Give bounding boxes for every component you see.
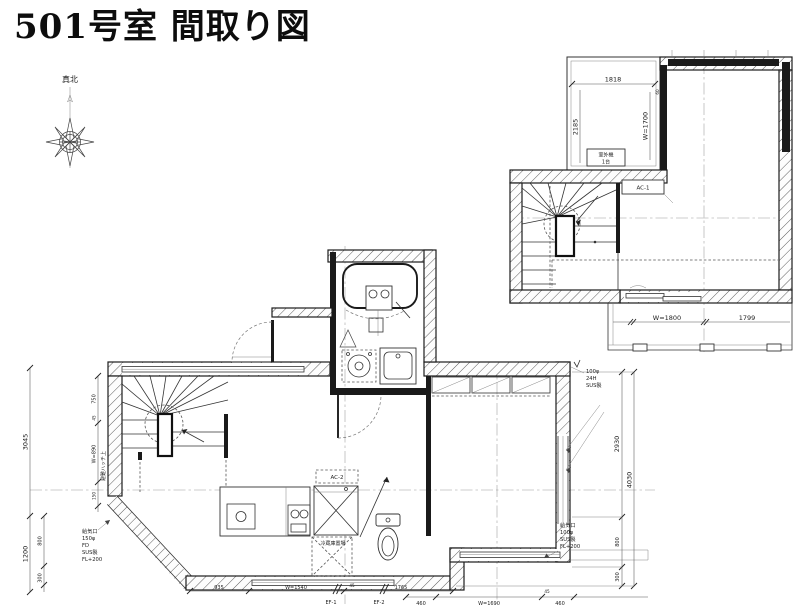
upper-stairs (522, 183, 616, 288)
vent-note-line2: 24H (586, 376, 597, 382)
supply-right-line1: 給気口 (560, 521, 576, 529)
dim-w1540: W=1540 (285, 585, 307, 591)
dim-stair-45: 45 (92, 415, 97, 421)
dim-w1700: W=1700 (642, 112, 650, 140)
vent-note-line3: SUS製 (586, 381, 602, 389)
upper-top-ticks (672, 50, 768, 57)
dim-left-800: 800 (38, 536, 44, 546)
dim-60: 60 (655, 89, 660, 95)
door-swing-triangle (340, 330, 356, 347)
dim-460a: 460 (416, 601, 426, 607)
main-ac-label: AC-2 (331, 475, 344, 481)
supply-right-line2: 100φ (560, 530, 574, 536)
floor-plan-drawing: 501号室 間取り図 真北 (0, 0, 800, 609)
dim-150: 150 (92, 492, 97, 500)
vent-note-top-right: 100φ 24H SUS製 (571, 360, 602, 389)
outdoor-unit-count: 1台 (602, 159, 610, 166)
ac-unit-label: AC-1 (637, 186, 650, 192)
dim-2185: 2185 (572, 119, 580, 136)
true-north-label: 真北 (62, 74, 78, 84)
dim-left-300: 300 (38, 573, 44, 583)
compass-rose-icon: 真北 (46, 74, 94, 168)
main-stairs (122, 376, 228, 492)
outdoor-unit-label: 室外機 (598, 152, 613, 159)
supply-left-line2: 150φ (82, 536, 96, 542)
supply-left-line1: 給気口 (82, 527, 98, 535)
dim-2930: 2930 (613, 436, 621, 453)
supply-left-line3: FD (82, 543, 89, 549)
main-windows (122, 363, 569, 589)
outdoor-unit-box: 室外機 1台 (587, 149, 625, 166)
dim-w890: W=890 (92, 445, 98, 464)
utility-shaft (314, 486, 358, 535)
dim-45a: 45 (349, 583, 355, 588)
washroom-door (338, 395, 381, 438)
dim-w1690: W=1690 (478, 601, 500, 607)
fan2-label: EF-2 (373, 600, 384, 606)
bathtub (343, 264, 417, 336)
dim-935: 935 (214, 585, 224, 591)
fridge-space: 冷蔵庫置場 (312, 537, 352, 576)
dim-1765: 1765 (395, 585, 408, 591)
dim-45b: 45 (544, 589, 550, 594)
dim-4030: 4030 (626, 472, 634, 489)
supply-right-line4: FL+200 (560, 544, 580, 550)
dim-balcony-window: W=1800 (653, 314, 681, 322)
dim-3045: 3045 (22, 434, 30, 451)
page-title: 501号室 間取り図 (14, 7, 311, 47)
dim-right-800: 800 (615, 537, 621, 547)
upper-floor-plan: 室外機 1台 AC-1 1818 2185 W=1700 60 (510, 50, 792, 352)
wc (360, 477, 400, 560)
supply-right-line3: SUS製 (560, 535, 576, 543)
washing-machine-space (342, 350, 376, 382)
ac-space: AC-2 (316, 470, 358, 483)
floor-plan-page: 501号室 間取り図 真北 (0, 0, 800, 609)
supply-left-line4: SUS製 (82, 548, 98, 556)
dim-right-300: 300 (615, 572, 621, 582)
supply-left-line5: FL+200 (82, 557, 102, 563)
kitchen (220, 487, 310, 536)
washbasin (380, 348, 416, 384)
fridge-label: 冷蔵庫置場 (320, 540, 345, 547)
dim-1200: 1200 (22, 546, 30, 563)
entry-door (232, 320, 274, 362)
supply-vent-note-left: 給気口 150φ FD SUS製 FL+200 (82, 520, 110, 563)
dim-1818: 1818 (605, 76, 622, 84)
dim-1799: 1799 (739, 314, 756, 322)
bedroom (432, 377, 604, 473)
fan1-label: EF-1 (325, 600, 336, 606)
toilet (376, 514, 400, 560)
bathroom (338, 264, 417, 438)
hatch-note-label: 避難ハッチ上 (100, 451, 107, 481)
dim-750: 750 (92, 394, 98, 404)
dim-460b: 460 (555, 601, 565, 607)
